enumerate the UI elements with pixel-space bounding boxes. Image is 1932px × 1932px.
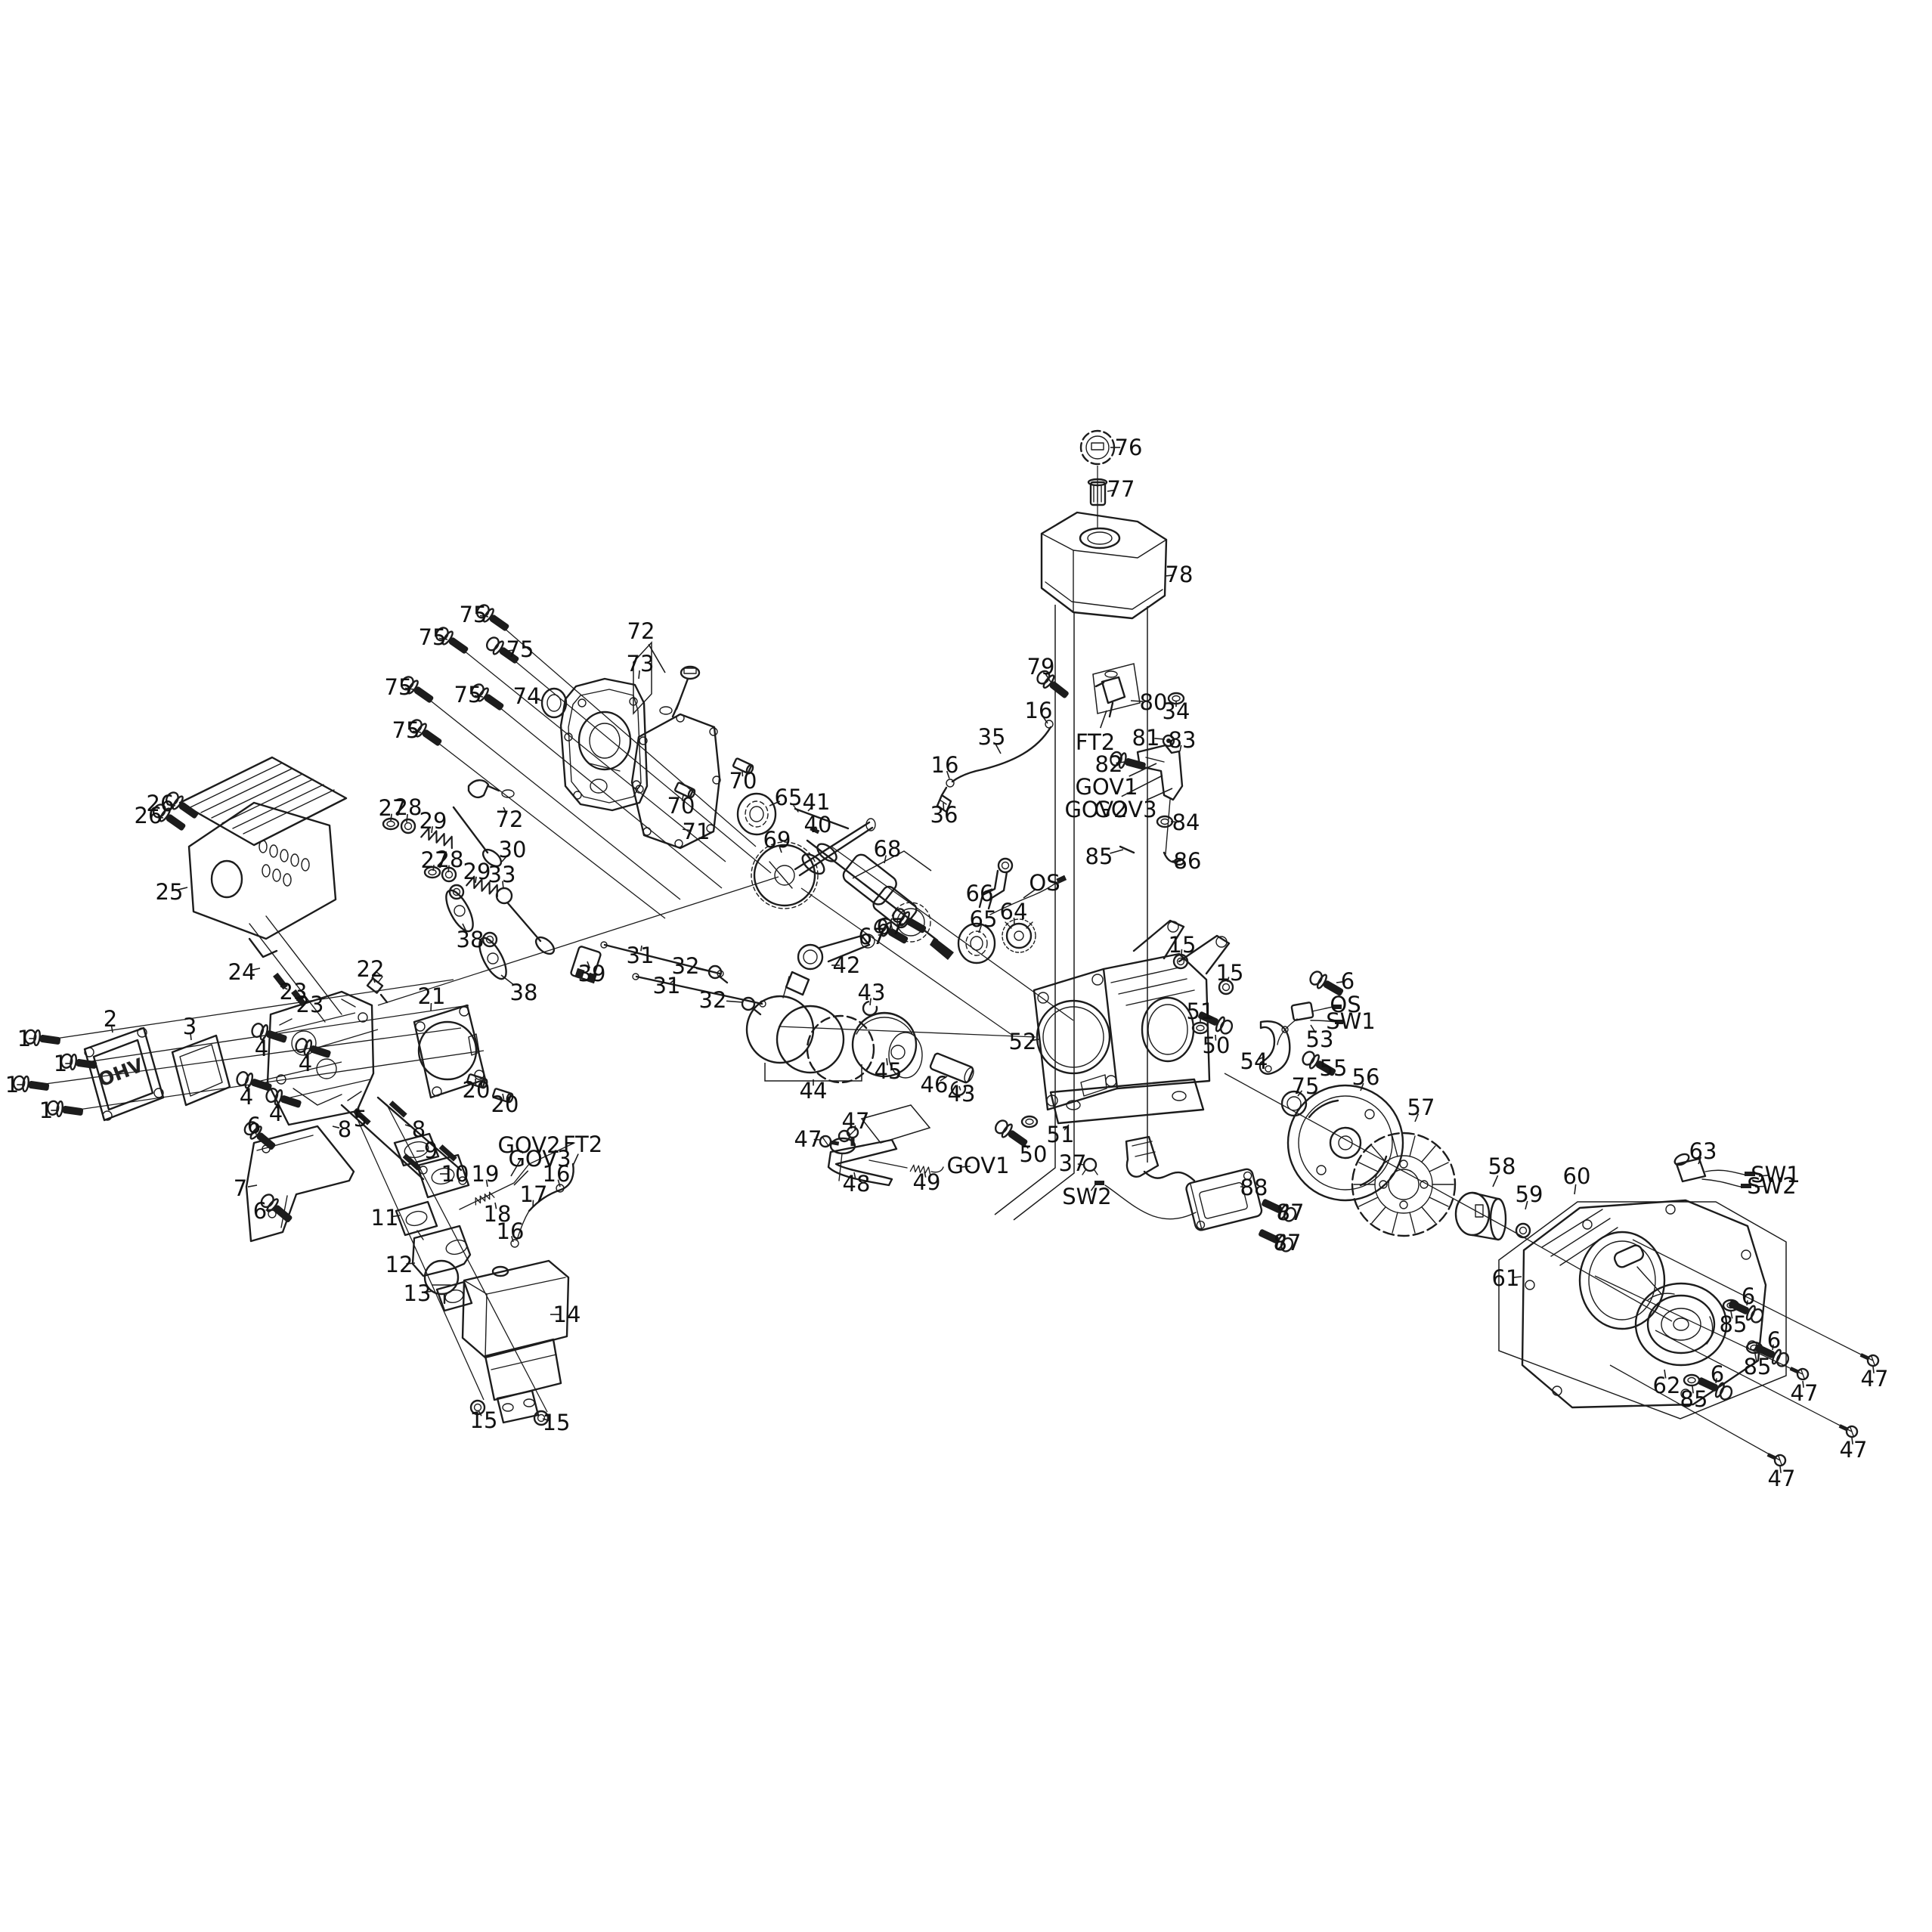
callout-label: 83 [1169,727,1197,753]
fuel-tank [1042,512,1166,618]
dipstick-bracket [469,780,514,797]
flywheel-nut [1516,1224,1530,1237]
callout-label: 31 [627,943,655,968]
callout-label: 26 [135,803,163,828]
callout-label: 85 [1744,1354,1772,1379]
callout-label: 3 [183,1014,197,1039]
callout-label: 6 [1711,1361,1724,1387]
callout-label: 84 [1172,810,1200,835]
callout-label: 75 [419,624,447,650]
callout-label: 39 [578,961,606,986]
callout-label: 28 [395,794,423,820]
callout-label: 35 [978,724,1006,750]
callout-label: 4 [269,1101,283,1126]
muffler-guard [246,1126,354,1241]
callout-label: 50 [1203,1033,1231,1058]
cooling-fan [1352,1133,1455,1236]
callout-label: 49 [913,1169,941,1195]
spark-plug-cap [1126,1137,1158,1177]
assembly-axis-lines [34,618,1873,1460]
engine-parts-diagram-page: OHV [0,0,1932,1932]
callout-label: 6 [1341,968,1355,994]
callout-label: 38 [457,927,485,952]
callout-label: 72 [496,807,524,832]
callout-label: 54 [1240,1048,1268,1074]
callout-label: 73 [627,651,655,677]
callout-label: 59 [1516,1181,1543,1207]
callout-label: 44 [800,1078,828,1104]
callout-label: 88 [1240,1175,1268,1200]
callout-label: 31 [653,973,681,999]
muffler [180,757,346,957]
callout-label: 9 [424,1138,438,1163]
piston-rings [747,996,874,1082]
callout-label: 72 [627,618,655,644]
callout-label: 16 [497,1218,525,1244]
callout-label: SW2 [1062,1184,1112,1209]
callout-label: 68 [874,836,902,862]
callout-label: 75 [385,674,413,700]
callout-label: 78 [1166,562,1194,587]
callout-label: 6 [1742,1283,1755,1309]
callout-label: 29 [420,808,447,834]
callout-label: 51 [1187,999,1215,1024]
callout-label: GOV1 [1075,774,1138,800]
air-cleaner [463,1261,568,1423]
callout-label: 82 [1095,751,1123,777]
blower-housing-group [1522,1152,1880,1467]
callout-label: 61 [1492,1265,1520,1291]
callout-label: 6 [247,1113,261,1138]
callout-label: 48 [843,1171,871,1197]
washer [1157,816,1172,827]
callout-label: 41 [803,789,831,815]
callout-label: 16 [1025,698,1053,723]
callout-label: 55 [1320,1055,1348,1081]
callout-label: 15 [470,1407,498,1433]
flywheel [1288,1085,1403,1200]
callout-label: 21 [418,983,446,1009]
callout-label: 50 [1020,1141,1048,1167]
governor-control-plate [1138,735,1182,854]
callout-label: 53 [1306,1026,1334,1052]
callout-label: 81 [1132,725,1160,751]
callout-label: 79 [1027,654,1055,680]
callout-labels: 76777879163516368034FT2818382GOV1GOV2GOV… [5,435,1889,1491]
aircleaner-gasket [437,1282,472,1311]
callout-label: 85 [1720,1311,1748,1337]
crankcase-cover-group [398,602,848,848]
callout-label: 47 [1791,1380,1819,1406]
callout-label: 15 [1216,960,1244,986]
callout-label: 85 [1085,844,1113,869]
callout-label: 85 [1680,1386,1708,1412]
callout-label: 15 [1169,932,1197,958]
callout-label: 87 [1277,1200,1305,1225]
callout-label: 14 [553,1302,581,1327]
callout-label: 36 [930,802,958,828]
callout-label: 86 [1174,848,1202,874]
callout-label: 6 [253,1198,267,1224]
callout-label: SW2 [1747,1173,1797,1199]
callout-label: 17 [520,1181,548,1207]
callout-label: 20 [491,1091,519,1117]
callout-label: 8 [338,1116,351,1142]
callout-label: 1 [17,1026,31,1051]
callout-label: 47 [794,1126,822,1152]
callout-label: 75 [506,636,534,662]
callout-label: 47 [1768,1466,1796,1491]
callout-label: 32 [699,987,727,1013]
callout-label: 47 [1861,1366,1889,1392]
starter-cup [1456,1193,1506,1240]
callout-label: OS [1029,870,1060,896]
callout-label: 42 [833,952,861,978]
callout-label: 76 [1115,435,1143,460]
callout-label: 22 [357,956,385,982]
callout-label: 6 [1767,1327,1781,1353]
callout-label: 11 [371,1205,399,1231]
callout-label: 43 [858,980,886,1005]
callout-label: 34 [1163,698,1190,724]
callout-label: 30 [499,837,527,862]
callout-label: 25 [156,879,184,905]
drain-washer [1193,1023,1208,1033]
exploded-engine-diagram: OHV [0,0,1932,1932]
callout-label: 70 [729,768,757,794]
callout-label: FT2 [563,1132,602,1157]
callout-label: 40 [804,812,832,838]
spring-seat [401,819,415,833]
callout-label: 33 [488,862,516,887]
callout-label: 19 [472,1161,500,1187]
fuel-valve-petcock [1096,671,1125,717]
callout-label: 47 [1840,1437,1868,1463]
callout-label: 1 [54,1051,67,1076]
callout-label: 70 [667,793,695,819]
callout-label: 5 [354,1106,367,1132]
callout-label: 52 [1009,1029,1037,1054]
callout-label: 75 [454,682,482,707]
callout-label: 87 [1274,1230,1302,1255]
callout-label: 75 [392,717,420,743]
callout-label: 43 [948,1081,976,1107]
callout-label: 63 [1689,1138,1717,1164]
housing-washer [1684,1375,1699,1386]
callout-label: 62 [1653,1373,1681,1398]
callout-label: GOV3 [1094,797,1156,822]
callout-label: 28 [436,847,464,872]
exhaust-valve [497,888,557,957]
callout-label: 20 [463,1077,491,1103]
callout-label: 71 [683,819,711,844]
callout-label: 58 [1488,1153,1516,1179]
callout-label: 12 [385,1252,413,1277]
callout-label: 2 [104,1006,117,1032]
push-rod [601,942,723,977]
valve-cover: OHV [85,1028,163,1120]
recoil-starter [1613,1243,1726,1365]
callout-label: 7 [234,1175,247,1201]
callout-label: 46 [921,1072,949,1098]
callout-label: 66 [966,881,994,906]
callout-label: 37 [1059,1150,1087,1176]
callout-label: 75 [460,602,488,627]
callout-label: 64 [1000,899,1028,924]
drain-washer [1022,1116,1037,1127]
callout-label: GOV1 [946,1153,1009,1178]
callout-label: 57 [1407,1094,1435,1120]
callout-label: 4 [255,1036,268,1061]
oil-dipstick [660,667,699,717]
callout-label: 1 [39,1098,53,1123]
callout-label: 10 [441,1161,469,1187]
callout-label: 47 [842,1108,870,1134]
callout-label: 77 [1107,476,1135,502]
callout-label: 4 [299,1051,312,1076]
callout-label: 38 [510,980,538,1005]
fuel-strainer [1088,479,1107,505]
callout-label: 69 [763,827,791,853]
blower-housing [1522,1200,1766,1407]
callout-label: 23 [296,992,324,1017]
ht-lead [1144,1172,1194,1181]
callout-label: 60 [1563,1163,1591,1189]
callout-label: 1 [5,1072,19,1098]
leader-line [248,1185,257,1187]
leader-line [726,1001,743,1002]
callout-label: 74 [513,683,541,709]
callout-label: 13 [404,1280,432,1306]
callout-label: 51 [1047,1122,1075,1147]
callout-label: 16 [931,752,959,778]
callout-label: 65 [970,906,998,932]
callout-label: 15 [543,1410,571,1435]
callout-label: 45 [875,1058,903,1084]
callout-label: 75 [1292,1073,1320,1099]
callout-label: 56 [1352,1064,1380,1090]
callout-label: 65 [775,785,803,810]
callout-label: 67 [859,924,887,949]
stop-wire [1105,1185,1196,1219]
valve-cap [709,966,727,983]
callout-label: 4 [240,1084,253,1110]
callout-label: 24 [228,959,256,985]
callout-label: 29 [463,859,491,884]
